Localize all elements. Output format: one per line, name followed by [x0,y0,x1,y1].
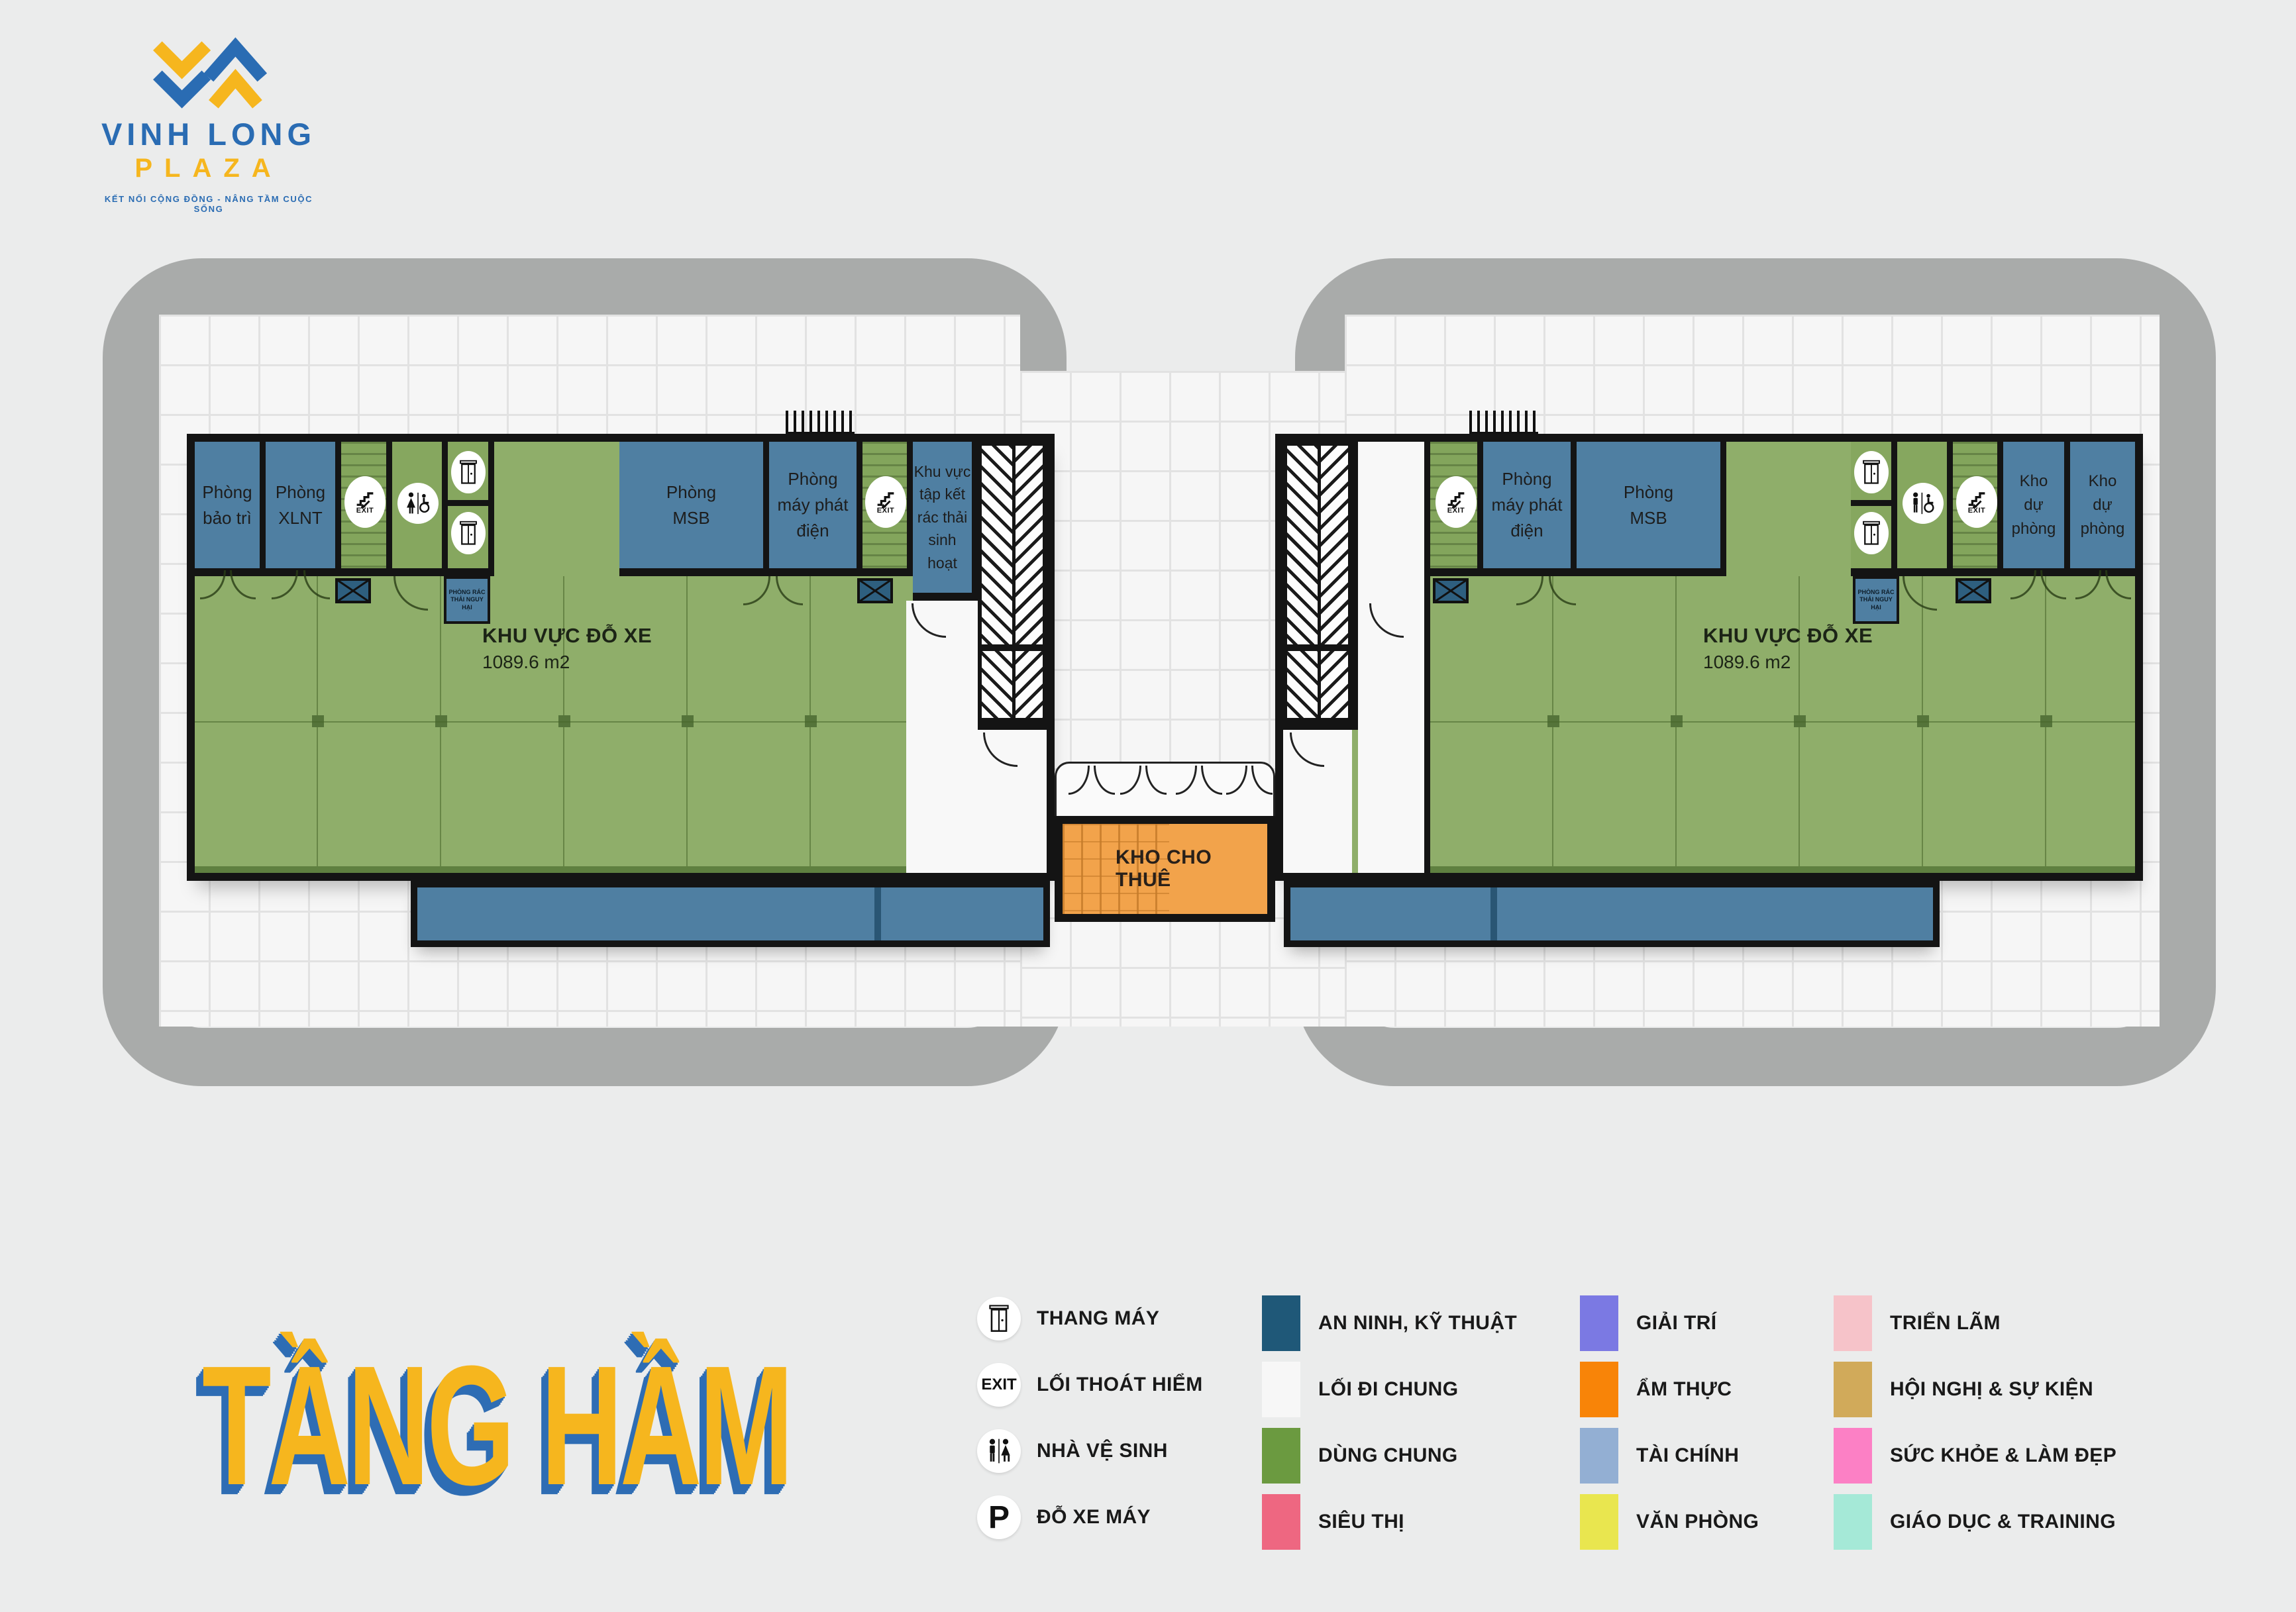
strip-divider [874,887,881,940]
room-rac-thai-nguy-hai: PHÒNG RÁC THẢI NGUY HẠI [1853,576,1899,624]
column-marker [1547,715,1559,727]
ramp-hatch [1318,446,1348,718]
ramp-wall [1287,644,1348,651]
door-swing [1120,766,1167,795]
damper-icon [1433,578,1469,603]
column-marker [805,715,817,727]
room-label: Phòng XLNT [270,479,331,531]
column-marker [2040,715,2052,727]
wc-icon-glyph [986,1437,1012,1465]
room-label: Kho dự phòng [2079,470,2126,541]
elevator-icon [458,460,478,485]
legend-swatch [1580,1295,1618,1351]
wc-accessible-icon [404,491,432,515]
exit-stairs-badge: EXIT [865,476,906,528]
door-swing [1516,576,1576,605]
legend-swatch [1262,1494,1300,1550]
legend-label: NHÀ VỆ SINH [1037,1429,1168,1473]
page-title: TẦNG HẦM [202,1341,791,1511]
door-swing [272,570,330,599]
room-label: Phòng MSB [1612,479,1685,531]
legend-swatch [1834,1295,1872,1351]
ramp-wall [982,644,1043,651]
door-swing [200,570,256,599]
elevator-badge [451,512,486,554]
parking-label: KHU VỰC ĐỖ XE 1089.6 m2 [1703,624,1873,673]
legend-label: GIÁO DỤC & TRAINING [1890,1494,2116,1550]
room-label: Phòng MSB [655,479,728,531]
column-marker [1794,715,1806,727]
room-kho-du-phong: Kho dự phòng [2070,442,2135,568]
parking-area: KHU VỰC ĐỖ XE 1089.6 m2 [195,576,906,873]
center-lobby [1055,762,1275,819]
legend-swatch [1834,1362,1872,1417]
room-label: Phòng máy phát điện [773,466,853,544]
legend-label: AN NINH, KỸ THUẬT [1318,1295,1517,1351]
exit-stairs-badge: EXIT [1956,476,1997,528]
legend-label: LỐI ĐI CHUNG [1318,1362,1458,1417]
column-marker [1917,715,1929,727]
room-tap-ket-rac: Khu vực tập kết rác thải sinh hoạt [913,442,978,593]
room-label: Kho dự phòng [2010,470,2057,541]
wc-badge [397,483,439,524]
strip-divider [1490,887,1497,940]
legend-label: DÙNG CHUNG [1318,1428,1458,1484]
stairs-icon [1965,490,1988,509]
door-swing [2075,570,2131,599]
damper-icon [857,578,893,603]
right-service-strip [1284,881,1940,947]
exit-label: EXIT [356,507,374,515]
legend-label: VĂN PHÒNG [1636,1494,1759,1550]
room-label: PHÒNG RÁC THẢI NGUY HẠI [446,589,488,611]
wall [1851,500,1891,506]
legend-swatch [1580,1362,1618,1417]
legend-swatch [1262,1295,1300,1351]
door-swing [743,576,803,605]
exit-stairs-badge: EXIT [1435,476,1477,528]
brand-subtitle: PLAZA [93,154,325,183]
elevator-icon [1861,460,1881,485]
room-may-phat-dien: Phòng máy phát điện [769,442,862,568]
brand-mark-icon [149,23,268,116]
legend-swatch [1834,1428,1872,1484]
room-rac-thai-nguy-hai: PHÒNG RÁC THẢI NGUY HẠI [444,576,490,624]
damper-icon [1956,578,1991,603]
brand-name: VINH LONG [93,116,325,152]
room-may-phat-dien: Phòng máy phát điện [1483,442,1577,568]
wall [913,593,978,601]
room-kho-cho-thue: KHO CHO THUÊ [1055,816,1275,922]
exit-text: EXIT [981,1376,1016,1394]
parking-title: KHU VỰC ĐỖ XE [482,624,652,648]
legend-label: HỘI NGHỊ & SỰ KIỆN [1890,1362,2093,1417]
room-kho-du-phong: Kho dự phòng [2003,442,2070,568]
elevator-badge [451,451,486,493]
stairs-icon [874,490,897,509]
exit-icon: EXIT [977,1363,1021,1407]
legend-label: GIẢI TRÍ [1636,1295,1717,1351]
door-swing [1176,766,1222,795]
wall [1430,568,1726,576]
wc-badge [1903,483,1944,524]
wc-icon [977,1429,1021,1473]
legend-label: THANG MÁY [1037,1297,1159,1340]
corridor [1358,442,1430,873]
elevator-badge [1854,451,1889,493]
room-bao-tri: Phòng bảo trì [195,442,266,568]
ramp-hatch [1287,446,1318,718]
ramp [978,442,1047,722]
elevator-icon [1861,521,1881,546]
left-wing-plan: Phòng bảo trì Phòng XLNT Phòng MSB Phòng… [187,434,1055,881]
wall [1283,722,1352,730]
room-msb: Phòng MSB [1577,442,1726,568]
door-swing [2010,570,2066,599]
legend-label: TRIỂN LÃM [1890,1295,2001,1351]
legend-swatch [1262,1428,1300,1484]
room-label: Phòng bảo trì [199,479,256,531]
legend-label: SIÊU THỊ [1318,1494,1404,1550]
ramp-hatch [982,446,1012,718]
column-marker [435,715,447,727]
legend-label: LỐI THOÁT HIỂM [1037,1363,1203,1407]
legend-swatch [1834,1494,1872,1550]
legend-label: TÀI CHÍNH [1636,1428,1739,1484]
wall [978,722,1047,730]
stairs-icon [354,490,376,509]
corridor [906,601,978,873]
exit-label: EXIT [1447,507,1465,515]
exit-stairs-badge: EXIT [344,476,386,528]
column-marker [1671,715,1683,727]
column-marker [312,715,324,727]
ramp [1283,442,1352,722]
stairs-icon [1445,490,1467,509]
room-xlnt: Phòng XLNT [266,442,341,568]
room-msb: Phòng MSB [619,442,769,568]
legend-label: ĐỖ XE MÁY [1037,1495,1151,1539]
vent-grille-icon [1469,411,1538,434]
elevator-icon [977,1297,1021,1340]
parking-title: KHU VỰC ĐỖ XE [1703,624,1873,648]
parking-area-value: 1089.6 m2 [482,652,652,673]
legend-label: SỨC KHỎE & LÀM ĐẸP [1890,1428,2116,1484]
parking-label: KHU VỰC ĐỖ XE 1089.6 m2 [482,624,652,673]
room-label: Phòng máy phát điện [1487,466,1567,544]
legend-label: ẨM THỰC [1636,1362,1732,1417]
column-marker [558,715,570,727]
parking-area-value: 1089.6 m2 [1703,652,1873,673]
room-label: KHO CHO THUÊ [1063,846,1267,891]
room-label: Khu vực tập kết rác thải sinh hoạt [913,460,972,575]
elevator-icon-glyph [988,1304,1010,1333]
column-marker [682,715,694,727]
wall [619,568,913,576]
door-swing [1226,766,1273,795]
basement-floor-plan-page: VINH LONG PLAZA KẾT NỐI CỘNG ĐỒNG - NÂNG… [0,0,2296,1612]
ramp-hatch [1012,446,1043,718]
legend-swatch [1262,1362,1300,1417]
exit-label: EXIT [1968,507,1985,515]
right-wing-plan: Phòng máy phát điện Phòng MSB Kho dự phò… [1275,434,2143,881]
brand-tagline: KẾT NỐI CỘNG ĐỒNG - NÂNG TẦM CUỘC SỐNG [93,194,325,214]
wc-accessible-icon [1909,491,1937,515]
room-label: PHÒNG RÁC THẢI NGUY HẠI [1855,589,1897,611]
brand-logo: VINH LONG PLAZA KẾT NỐI CỘNG ĐỒNG - NÂNG… [93,23,325,214]
damper-icon [335,578,371,603]
exit-label: EXIT [877,507,894,515]
elevator-badge [1854,512,1889,554]
wall [448,500,488,506]
legend-swatch [1580,1428,1618,1484]
motorbike-parking-icon: P [977,1495,1021,1539]
elevator-icon [458,521,478,546]
parking-area: KHU VỰC ĐỖ XE 1089.6 m2 [1430,576,2135,873]
door-swing [1069,766,1115,795]
legend-swatch [1580,1494,1618,1550]
wall [1352,442,1358,730]
vent-grille-icon [786,411,855,434]
left-service-strip [411,881,1050,947]
